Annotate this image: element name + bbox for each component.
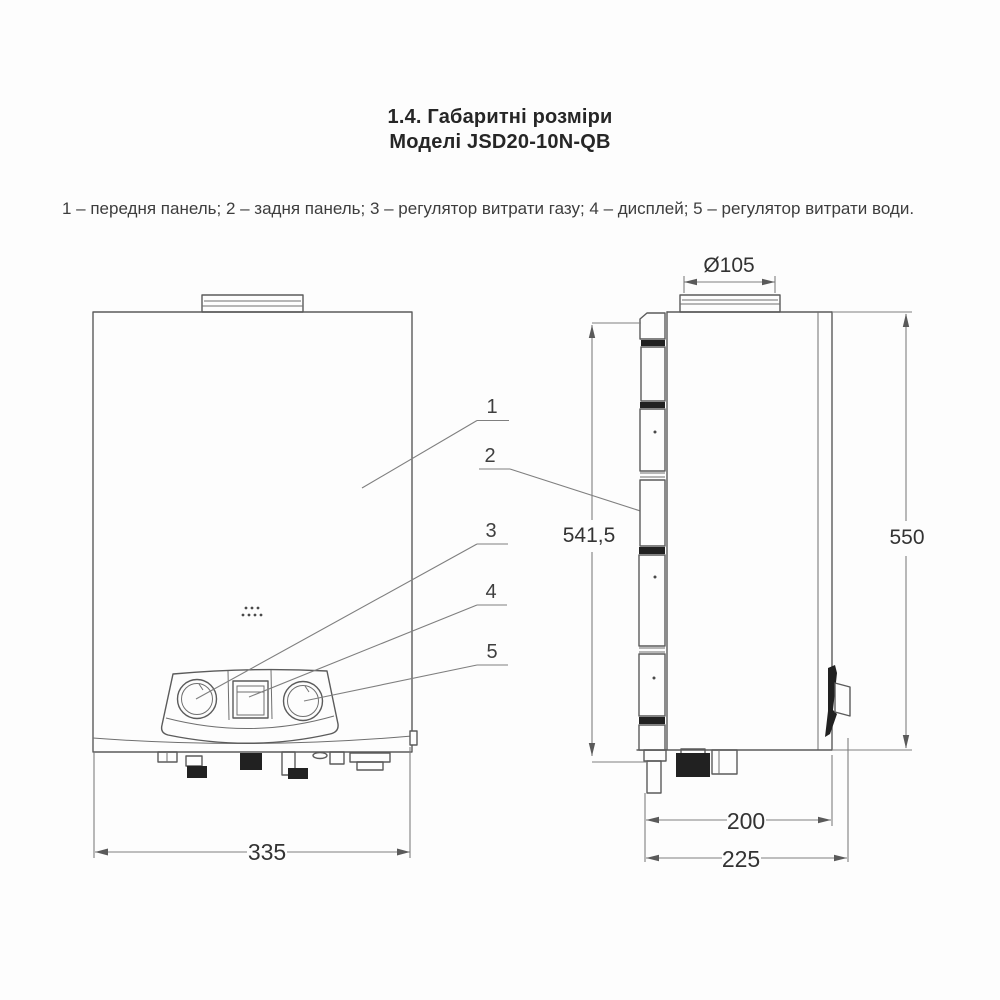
bottom-fittings-front xyxy=(158,752,390,779)
bottom-fittings-side xyxy=(644,749,737,793)
front-clip-icon xyxy=(825,665,850,737)
dimension-label-flue-diameter: Ø105 xyxy=(694,254,764,278)
callout-number-back-panel: 2 xyxy=(479,445,501,468)
dimension-label-body-depth: 200 xyxy=(711,808,781,835)
dimension-flue xyxy=(684,276,775,293)
front-view xyxy=(93,295,417,858)
side-latch-icon xyxy=(410,731,417,745)
control-panel xyxy=(162,670,339,744)
callout-number-display: 4 xyxy=(480,581,502,604)
callout-number-front-panel: 1 xyxy=(481,396,503,419)
side-view xyxy=(589,276,912,862)
flue-collar-side-icon xyxy=(680,295,780,312)
callout-number-water-regulator: 5 xyxy=(481,641,503,664)
page-title: 1.4. Габаритні розміри xyxy=(0,106,1000,129)
callout-number-gas-regulator: 3 xyxy=(480,520,502,543)
flue-collar-front-icon xyxy=(202,295,303,312)
dimension-label-back-panel-height: 541,5 xyxy=(554,524,624,548)
vent-dots-icon xyxy=(242,607,263,617)
parts-legend: 1 – передня панель; 2 – задня панель; 3 … xyxy=(62,199,914,219)
dimension-label-front-width: 335 xyxy=(232,839,302,866)
back-panel-bracket-profile xyxy=(639,313,665,750)
page-subtitle-model: Моделі JSD20-10N-QB xyxy=(0,131,1000,154)
dimension-label-overall-depth: 225 xyxy=(706,846,776,873)
dimension-label-overall-height: 550 xyxy=(877,526,937,550)
callout-leaders xyxy=(196,421,656,702)
